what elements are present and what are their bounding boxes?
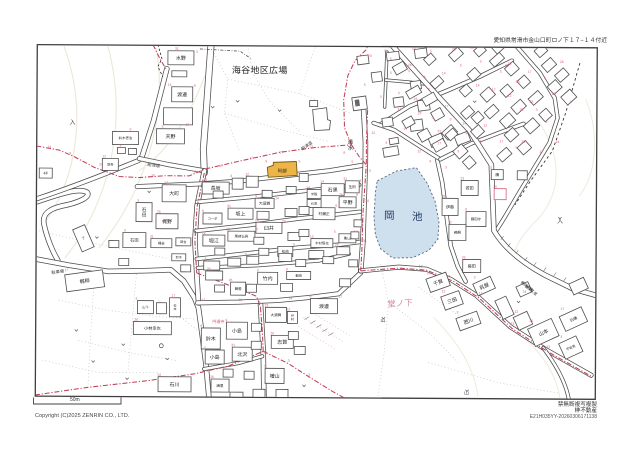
svg-text:12: 12: [419, 264, 423, 268]
svg-text:石黒: 石黒: [311, 202, 318, 206]
svg-text:3: 3: [257, 268, 259, 272]
svg-text:26: 26: [462, 255, 466, 259]
svg-text:23: 23: [530, 100, 534, 104]
svg-text:26: 26: [335, 243, 339, 247]
svg-text:14: 14: [523, 290, 527, 294]
svg-text:5: 5: [351, 160, 353, 164]
svg-text:14: 14: [306, 186, 310, 190]
svg-text:31: 31: [343, 177, 347, 181]
svg-text:天野: 天野: [165, 133, 175, 140]
svg-text:9: 9: [129, 128, 131, 132]
svg-text:26: 26: [270, 331, 274, 335]
svg-text:清: 清: [348, 138, 354, 146]
svg-text:31: 31: [239, 298, 243, 302]
svg-text:17: 17: [560, 307, 564, 311]
svg-text:水野: 水野: [176, 55, 186, 62]
svg-text:14: 14: [442, 71, 446, 75]
svg-text:池: 池: [412, 210, 423, 223]
svg-text:渡邊: 渡邊: [177, 91, 187, 98]
svg-text:31: 31: [363, 239, 367, 243]
svg-text:廣: 廣: [495, 171, 499, 177]
svg-text:17: 17: [539, 150, 543, 154]
svg-text:12: 12: [245, 172, 249, 176]
svg-text:本: 本: [173, 306, 176, 311]
svg-text:23: 23: [510, 322, 514, 326]
svg-text:17: 17: [404, 127, 408, 131]
svg-text:3: 3: [196, 50, 198, 54]
svg-text:9: 9: [265, 159, 267, 163]
svg-text:5: 5: [334, 230, 336, 234]
svg-text:23: 23: [368, 54, 372, 58]
svg-text:14: 14: [275, 196, 279, 200]
svg-text:23: 23: [264, 303, 268, 307]
svg-text:12: 12: [371, 131, 375, 135]
svg-text:石川: 石川: [170, 382, 180, 388]
svg-text:23: 23: [521, 140, 525, 144]
svg-text:3: 3: [570, 100, 572, 104]
svg-text:3: 3: [230, 174, 232, 178]
svg-text:3: 3: [560, 335, 562, 339]
svg-text:26: 26: [210, 375, 214, 379]
svg-text:23: 23: [418, 111, 422, 115]
svg-text:5: 5: [490, 166, 492, 170]
svg-text:5: 5: [288, 358, 290, 362]
svg-text:23: 23: [203, 178, 207, 182]
svg-text:3: 3: [277, 249, 279, 253]
svg-text:山下: 山下: [142, 304, 149, 309]
svg-text:平野: 平野: [343, 199, 353, 206]
svg-text:5: 5: [298, 160, 300, 164]
svg-text:31: 31: [359, 179, 363, 183]
svg-text:伊藤: 伊藤: [446, 203, 454, 209]
svg-text:愛知県常滑市金山口町ロノ下１７−１４付近: 愛知県常滑市金山口町ロノ下１７−１４付近: [493, 36, 607, 44]
svg-text:17: 17: [499, 140, 503, 144]
svg-text:23: 23: [516, 80, 520, 84]
svg-text:3: 3: [385, 141, 387, 145]
svg-text:梶野: 梶野: [162, 218, 172, 225]
svg-text:阿部: 阿部: [278, 167, 288, 174]
svg-text:小島: 小島: [232, 328, 242, 335]
svg-text:鈴木壱治: 鈴木壱治: [119, 135, 133, 140]
svg-text:岡: 岡: [384, 210, 395, 222]
svg-text:Copyright (C)2025 ZENRIN CO.,: Copyright (C)2025 ZENRIN CO., LTD.: [35, 413, 130, 419]
svg-text:師台: 師台: [180, 239, 186, 244]
svg-text:梶柳: 梶柳: [79, 277, 90, 285]
svg-text:5: 5: [204, 346, 206, 350]
svg-text:14: 14: [164, 181, 168, 185]
svg-text:坂上: 坂上: [235, 211, 245, 218]
svg-text:26: 26: [207, 267, 211, 271]
svg-text:5: 5: [390, 57, 392, 61]
svg-text:14: 14: [463, 121, 467, 125]
svg-text:12: 12: [417, 149, 421, 153]
svg-text:4F: 4F: [43, 171, 48, 176]
svg-text:小島: 小島: [210, 354, 220, 361]
svg-text:12: 12: [514, 310, 518, 314]
svg-text:17: 17: [339, 295, 343, 299]
svg-text:26: 26: [151, 174, 155, 178]
svg-text:5: 5: [369, 169, 371, 173]
svg-text:円通寺: 円通寺: [212, 318, 224, 324]
svg-text:26: 26: [493, 185, 497, 189]
svg-text:渡邊: 渡邊: [319, 303, 329, 310]
svg-text:26: 26: [529, 319, 533, 323]
svg-text:23: 23: [427, 271, 431, 275]
svg-text:石黒: 石黒: [328, 188, 338, 194]
svg-text:17: 17: [279, 150, 283, 154]
svg-text:3: 3: [136, 297, 138, 301]
svg-text:17: 17: [172, 294, 176, 298]
svg-text:堂ノ下: 堂ノ下: [387, 297, 414, 309]
svg-text:5: 5: [430, 49, 432, 53]
svg-text:5: 5: [449, 274, 451, 278]
svg-text:3: 3: [162, 125, 164, 129]
svg-text:3: 3: [384, 49, 386, 53]
svg-text:31: 31: [231, 343, 235, 347]
svg-text:3: 3: [124, 229, 126, 233]
svg-text:影山: 影山: [344, 236, 351, 241]
svg-text:3: 3: [479, 140, 481, 144]
svg-text:23: 23: [460, 176, 464, 180]
svg-text:村瀬正: 村瀬正: [318, 211, 330, 216]
svg-text:5: 5: [264, 364, 266, 368]
svg-text:12: 12: [448, 220, 452, 224]
svg-text:9: 9: [255, 194, 257, 198]
svg-text:12: 12: [442, 289, 446, 293]
svg-text:8: 8: [202, 209, 204, 213]
svg-text:海谷地区広場: 海谷地区広場: [232, 64, 288, 75]
svg-text:12: 12: [479, 292, 483, 296]
svg-text:9: 9: [356, 103, 358, 107]
svg-text:3: 3: [536, 108, 538, 112]
svg-text:17: 17: [249, 156, 253, 160]
svg-text:3: 3: [119, 143, 121, 147]
svg-text:9: 9: [515, 146, 517, 150]
svg-text:志賀: 志賀: [277, 339, 287, 346]
svg-text:5: 5: [390, 71, 392, 75]
svg-text:鶴勝: 鶴勝: [235, 286, 242, 291]
svg-text:若田: 若田: [466, 184, 474, 190]
svg-text:8: 8: [465, 207, 467, 211]
svg-text:12: 12: [508, 62, 512, 66]
svg-text:3: 3: [259, 300, 261, 304]
svg-text:堀江: 堀江: [209, 237, 219, 244]
svg-text:17: 17: [528, 70, 532, 74]
svg-text:3: 3: [308, 373, 310, 377]
svg-text:鉄骨: 鉄骨: [107, 162, 113, 167]
svg-text:臼井: 臼井: [264, 225, 274, 232]
svg-text:3: 3: [456, 310, 458, 314]
svg-text:3: 3: [398, 91, 400, 95]
svg-text:8: 8: [428, 87, 430, 91]
svg-text:17: 17: [437, 141, 441, 145]
svg-text:14: 14: [320, 180, 324, 184]
svg-text:14: 14: [157, 373, 161, 377]
svg-text:8: 8: [194, 84, 196, 88]
svg-text:米穀: 米穀: [311, 191, 318, 196]
svg-text:水: 水: [348, 144, 354, 152]
svg-text:31: 31: [437, 129, 441, 133]
svg-text:26: 26: [99, 162, 103, 166]
svg-text:9: 9: [505, 64, 507, 68]
svg-text:鈴木: 鈴木: [206, 335, 216, 342]
svg-text:入: 入: [70, 119, 76, 126]
svg-text:26: 26: [263, 350, 267, 354]
svg-text:31: 31: [227, 204, 231, 208]
svg-text:桶谷: 桶谷: [158, 240, 165, 245]
svg-text:50m: 50m: [70, 397, 80, 403]
svg-text:26: 26: [157, 210, 161, 214]
svg-text:8: 8: [356, 193, 358, 197]
svg-text:3: 3: [474, 276, 476, 280]
svg-text:5: 5: [460, 63, 462, 67]
svg-text:藤田: 藤田: [468, 263, 476, 269]
svg-text:増山: 増山: [270, 373, 280, 380]
svg-text:26: 26: [408, 63, 412, 67]
svg-text:3: 3: [408, 69, 410, 73]
svg-text:3: 3: [450, 117, 452, 121]
svg-text:生田: 生田: [349, 184, 357, 189]
svg-text:14: 14: [168, 83, 172, 87]
svg-text:禁無断複写複製: 禁無断複写複製: [558, 400, 598, 408]
svg-text:17: 17: [552, 92, 556, 96]
svg-text:8: 8: [256, 227, 258, 231]
svg-text:17: 17: [186, 123, 190, 127]
svg-text:尾崎仏具: 尾崎仏具: [235, 233, 249, 238]
svg-text:3: 3: [457, 149, 459, 153]
svg-text:17: 17: [492, 88, 496, 92]
svg-text:大須賀: 大須賀: [259, 201, 271, 206]
svg-text:藤田守: 藤田守: [471, 216, 482, 221]
svg-text:14: 14: [47, 145, 51, 149]
svg-text:3: 3: [380, 95, 382, 99]
svg-text:14: 14: [555, 140, 559, 144]
svg-text:5: 5: [500, 70, 502, 74]
svg-text:9: 9: [286, 267, 288, 271]
svg-text:23: 23: [546, 345, 550, 349]
svg-text:26: 26: [229, 278, 233, 282]
svg-text:木村悟也: 木村悟也: [315, 240, 329, 245]
svg-text:17: 17: [219, 164, 223, 168]
svg-text:5: 5: [364, 83, 366, 87]
svg-text:3: 3: [293, 242, 295, 246]
svg-text:14: 14: [289, 296, 293, 300]
svg-text:17: 17: [445, 104, 449, 108]
svg-text:12: 12: [484, 124, 488, 128]
svg-text:26: 26: [414, 97, 418, 101]
svg-text:E21H035YY-20260306171138: E21H035YY-20260306171138: [530, 414, 598, 420]
svg-text:26: 26: [452, 47, 456, 51]
svg-text:鈴木: 鈴木: [176, 255, 183, 260]
svg-text:26: 26: [442, 194, 446, 198]
svg-text:榊不動産: 榊不動産: [575, 406, 598, 414]
svg-text:8: 8: [465, 131, 467, 135]
svg-text:大須賀: 大須賀: [271, 312, 282, 317]
svg-text:8: 8: [310, 295, 312, 299]
svg-text:3: 3: [432, 115, 434, 119]
svg-text:31: 31: [150, 235, 154, 239]
svg-text:12: 12: [398, 107, 402, 111]
svg-text:5: 5: [424, 75, 426, 79]
svg-text:9: 9: [225, 318, 227, 322]
svg-text:9: 9: [335, 204, 337, 208]
svg-text:14: 14: [412, 47, 416, 51]
svg-text:9: 9: [546, 120, 548, 124]
svg-text:鶴田: 鶴田: [295, 273, 301, 278]
svg-text:14: 14: [365, 199, 369, 203]
svg-text:12: 12: [202, 231, 206, 235]
svg-text:14: 14: [476, 84, 480, 88]
svg-text:26: 26: [520, 108, 524, 112]
svg-text:9: 9: [429, 159, 431, 163]
svg-text:コーポ: コーポ: [208, 216, 218, 221]
svg-text:8: 8: [194, 170, 196, 174]
svg-text:5: 5: [445, 165, 447, 169]
svg-text:9: 9: [245, 252, 247, 256]
svg-text:8: 8: [343, 151, 345, 155]
svg-text:鵜飼: 鵜飼: [454, 230, 462, 235]
svg-text:12: 12: [286, 307, 290, 311]
svg-text:竹内: 竹内: [263, 275, 273, 282]
svg-text:26: 26: [560, 60, 564, 64]
svg-text:5: 5: [205, 257, 207, 261]
svg-text:北沢: 北沢: [237, 351, 247, 358]
svg-text:3: 3: [137, 199, 139, 203]
svg-text:5: 5: [480, 60, 482, 64]
svg-text:31: 31: [175, 47, 179, 51]
svg-text:26: 26: [282, 219, 286, 223]
svg-text:大町: 大町: [169, 190, 179, 197]
svg-text:5: 5: [544, 76, 546, 80]
svg-text:26: 26: [134, 318, 138, 322]
svg-text:9: 9: [69, 151, 71, 155]
svg-text:12: 12: [202, 298, 206, 302]
svg-text:諸星: 諸星: [216, 383, 224, 388]
svg-text:8: 8: [200, 324, 202, 328]
svg-text:12: 12: [508, 94, 512, 98]
svg-text:12: 12: [310, 235, 314, 239]
svg-text:17: 17: [65, 268, 69, 272]
svg-text:12: 12: [102, 154, 106, 158]
svg-text:23: 23: [226, 227, 230, 231]
svg-text:26: 26: [339, 193, 343, 197]
